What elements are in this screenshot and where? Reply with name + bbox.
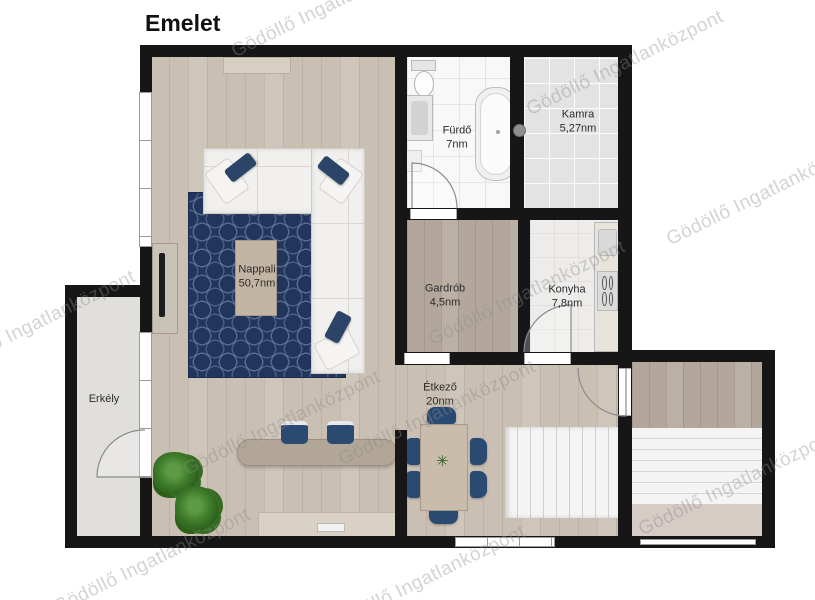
wardrobe-door-opening — [404, 353, 450, 364]
potted-plant-icon — [175, 486, 219, 530]
watermark: Gödöllő Ingatlanközpont — [663, 136, 815, 251]
room-label-nappali: Nappali 50,7nm — [238, 263, 275, 291]
kitchen-sink — [598, 229, 617, 256]
wall-right — [618, 45, 632, 548]
room-label-konyha: Konyha 7,8nm — [548, 283, 585, 311]
dining-chair-right-2 — [470, 471, 487, 498]
table-centerpiece-icon: ✳ — [436, 452, 449, 470]
dining-chair-right-1 — [470, 438, 487, 465]
tv-screen — [159, 253, 165, 317]
kitchen-door-opening — [524, 353, 571, 364]
balcony-door-window — [139, 332, 152, 478]
room-name: Étkező — [423, 381, 457, 393]
room-name: Gardrób — [425, 282, 465, 294]
wall-living-divider-a — [395, 45, 407, 365]
bar-stool-1 — [281, 421, 308, 444]
bar-counter — [237, 439, 397, 466]
staircase-upper — [505, 427, 618, 518]
toilet-tank — [411, 60, 436, 71]
staircase-lower — [632, 428, 763, 504]
balcony-floor — [77, 297, 143, 537]
stove-burners-icon — [598, 272, 617, 310]
toilet-bowl — [414, 71, 434, 97]
wall-extension-top — [632, 350, 775, 362]
stair-landing-floor — [632, 362, 763, 428]
bathroom-sink — [406, 95, 433, 141]
room-area: 7,8nm — [552, 297, 583, 309]
room-area: 7nm — [446, 138, 467, 150]
room-area: 4,5nm — [430, 296, 461, 308]
sideboard — [223, 57, 291, 74]
room-label-gardrob: Gardrób 4,5nm — [425, 282, 465, 310]
wall-balcony-left — [65, 285, 77, 548]
room-name: Fürdő — [443, 124, 472, 136]
room-name: Kamra — [562, 108, 594, 120]
room-name: Konyha — [548, 283, 585, 295]
floor-plan: Emelet ✳ — [0, 0, 815, 600]
window-living-left — [139, 92, 152, 247]
wall-living-divider-b — [395, 430, 407, 548]
room-area: 20nm — [426, 395, 454, 407]
bar-stool-2 — [327, 421, 354, 444]
room-area: 5,27nm — [560, 122, 597, 134]
dining-door-opening — [619, 368, 631, 416]
room-label-furdo: Fürdő 7nm — [443, 124, 472, 152]
pantry-door-knob-icon — [513, 124, 526, 137]
wall-balcony-top — [65, 285, 152, 297]
page-title: Emelet — [145, 10, 220, 37]
room-area: 50,7nm — [239, 277, 276, 289]
wall-extension-right — [762, 350, 775, 548]
room-name: Erkély — [89, 393, 120, 405]
bathroom-door-opening — [410, 209, 457, 219]
bathtub-inner — [480, 93, 512, 175]
wall-top — [140, 45, 632, 57]
room-label-erkely: Erkély — [89, 393, 120, 407]
room-name: Nappali — [238, 263, 275, 275]
stair-bottom-floor — [632, 504, 763, 537]
room-label-etkezo: Étkező 20nm — [423, 381, 457, 409]
stove — [597, 271, 618, 311]
window-extension-bottom — [640, 539, 756, 545]
bench-drawer — [317, 523, 345, 532]
room-label-kamra: Kamra 5,27nm — [560, 108, 597, 136]
tv-console — [152, 243, 178, 334]
bath-mat — [406, 150, 422, 172]
window-dining-bottom — [455, 537, 555, 547]
dining-chair-top — [427, 407, 456, 424]
wall-wardrobe-kitchen — [518, 220, 530, 365]
